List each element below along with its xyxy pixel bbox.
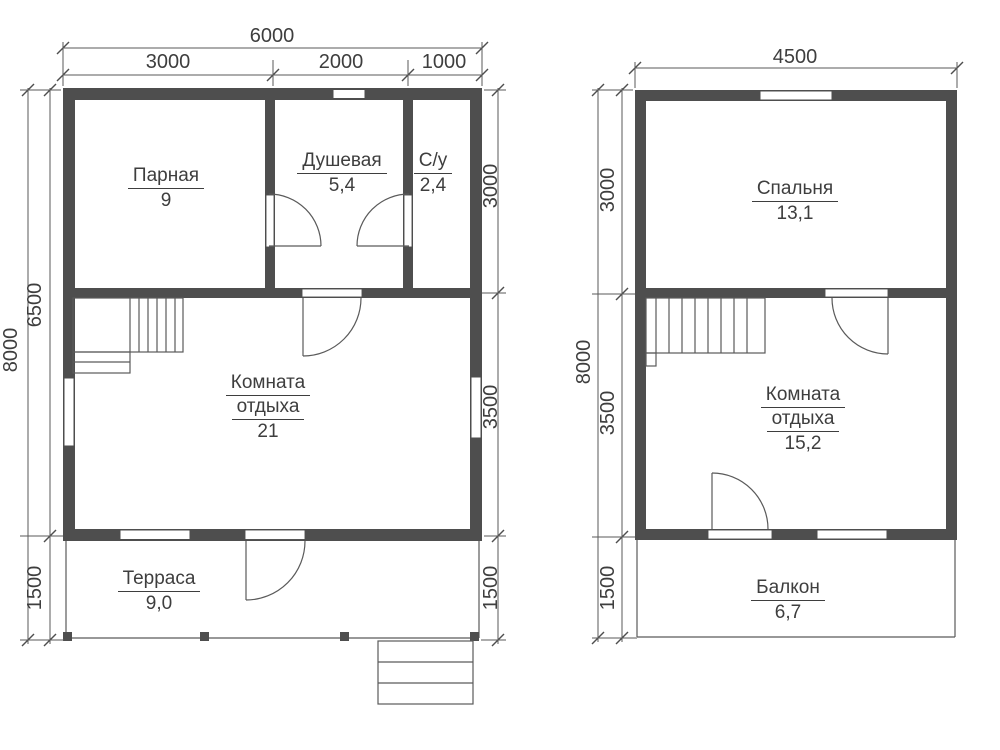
terrace-post — [200, 632, 209, 641]
terrace-post — [340, 632, 349, 641]
window — [120, 530, 190, 540]
door-swing-arc — [246, 541, 305, 600]
room-label-parnaya: Парная 9 — [106, 165, 226, 212]
room-name: С/у — [414, 150, 453, 174]
door-opening — [302, 289, 362, 297]
door-swing-arc — [712, 473, 768, 529]
dim-label-floor1-seg3: 1000 — [384, 51, 504, 73]
room-area: 2,4 — [383, 175, 483, 197]
window — [333, 90, 365, 99]
wall — [63, 88, 482, 100]
room-name: отдыха — [232, 396, 305, 420]
room-label-bedroom: Спальня 13,1 — [735, 178, 855, 225]
wall — [646, 288, 946, 298]
dim-label-floor2-total-width: 4500 — [735, 46, 855, 68]
door-opening — [266, 195, 274, 247]
dim-label-floor1-right-upper: 3000 — [479, 126, 503, 246]
dim-label-floor1-left-lower: 1500 — [23, 528, 47, 648]
dim-label-floor2-left-upper: 3000 — [596, 130, 620, 250]
room-name: Спальня — [752, 178, 838, 202]
window — [64, 378, 74, 446]
dimension-lines-floor1 — [20, 42, 506, 646]
wall — [75, 288, 470, 298]
room-name: Терраса — [118, 568, 201, 592]
door-swing-arc — [303, 298, 361, 356]
door-swing-arc — [357, 194, 409, 246]
dim-label-floor1-left-upper: 6500 — [23, 245, 47, 365]
door-opening — [708, 530, 772, 539]
dim-label-floor2-left-middle: 3500 — [596, 353, 620, 473]
stairs — [73, 298, 183, 373]
room-name: Комната — [761, 384, 845, 408]
floor-plan-canvas: Парная 9 Душевая 5,4 С/у 2,4 Комната отд… — [0, 0, 1000, 750]
dim-label-floor1-right-lower: 1500 — [479, 528, 503, 648]
door-swing-arc — [832, 298, 888, 354]
dim-label-floor1-seg2: 2000 — [281, 51, 401, 73]
dim-label-floor1-seg1: 3000 — [108, 51, 228, 73]
room-label-su: С/у 2,4 — [383, 150, 483, 197]
window — [817, 530, 887, 539]
room-area: 15,2 — [743, 433, 863, 455]
door-opening — [404, 195, 412, 247]
wall — [946, 90, 957, 540]
room-area: 9 — [106, 190, 226, 212]
room-name: Комната — [226, 372, 310, 396]
room-area: 6,7 — [728, 602, 848, 624]
room-label-terrace: Терраса 9,0 — [99, 568, 219, 615]
window — [760, 91, 832, 100]
room-label-lounge-floor2: Комната отдыха 15,2 — [743, 384, 863, 455]
room-name: Парная — [128, 165, 204, 189]
entry-steps — [378, 641, 473, 704]
room-area: 21 — [208, 421, 328, 443]
room-area: 9,0 — [99, 593, 219, 615]
dim-label-floor1-right-middle: 3500 — [479, 347, 503, 467]
dim-label-floor1-height-total: 8000 — [0, 290, 23, 410]
door-swing-arc — [269, 194, 321, 246]
door-opening — [245, 530, 305, 540]
terrace-post — [63, 632, 72, 641]
wall — [635, 90, 646, 540]
room-label-balcony: Балкон 6,7 — [728, 577, 848, 624]
dim-label-floor2-left-lower: 1500 — [596, 528, 620, 648]
stairs — [646, 298, 765, 366]
dim-label-floor2-height-total: 8000 — [572, 302, 596, 422]
room-area: 13,1 — [735, 203, 855, 225]
room-label-lounge-floor1: Комната отдыха 21 — [208, 372, 328, 443]
wall — [635, 529, 957, 540]
room-name: Душевая — [297, 150, 386, 174]
door-opening — [825, 289, 888, 297]
dim-label-floor1-total-width: 6000 — [212, 25, 332, 47]
terrace-post — [470, 632, 479, 641]
floor2-drawing — [592, 62, 963, 644]
room-name: отдыха — [767, 408, 840, 432]
room-name: Балкон — [751, 577, 825, 601]
